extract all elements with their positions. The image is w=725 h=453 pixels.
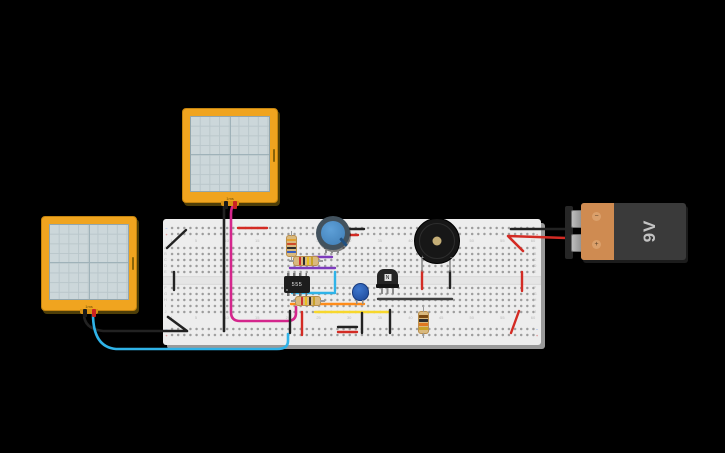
breadboard-label: 45 bbox=[439, 316, 443, 320]
resistor-band bbox=[307, 257, 310, 265]
rail-minus-mark: − bbox=[165, 328, 167, 332]
oscilloscope-top[interactable]: 1ms bbox=[182, 108, 278, 203]
breadboard-label: 10 bbox=[224, 316, 228, 320]
breadboard-label: 60 bbox=[531, 239, 535, 243]
resistor-band bbox=[419, 323, 428, 326]
breadboard-label: B bbox=[164, 252, 167, 256]
breadboard-label: J bbox=[165, 310, 167, 314]
breadboard-label: A bbox=[534, 246, 537, 250]
breadboard-label: D bbox=[164, 264, 167, 268]
potentiometer-pins bbox=[325, 250, 342, 253]
resistor-band bbox=[287, 251, 296, 254]
breadboard-label: 1 bbox=[170, 239, 172, 243]
rail-plus-mark: + bbox=[536, 233, 538, 237]
breadboard-label: F bbox=[164, 286, 166, 290]
scope-terminal-black[interactable] bbox=[83, 309, 87, 317]
breadboard-label: 15 bbox=[255, 239, 259, 243]
breadboard-rail-top bbox=[169, 225, 535, 237]
breadboard-label: 50 bbox=[469, 239, 473, 243]
breadboard-label: I bbox=[534, 304, 535, 308]
scope-terminal-red[interactable] bbox=[92, 309, 96, 317]
breadboard-center-channel bbox=[163, 276, 541, 285]
breadboard-label: G bbox=[164, 292, 167, 296]
potentiometer-knob[interactable] bbox=[321, 221, 345, 245]
breadboard-label: 50 bbox=[469, 316, 473, 320]
breadboard-label: F bbox=[534, 286, 536, 290]
breadboard-label: 35 bbox=[378, 316, 382, 320]
breadboard-label: 15 bbox=[255, 316, 259, 320]
potentiometer-pointer bbox=[339, 237, 348, 247]
buzzer-center-dot bbox=[433, 237, 442, 246]
breadboard-label: A bbox=[164, 246, 167, 250]
resistor-band bbox=[309, 297, 312, 305]
breadboard-rows-a-e bbox=[169, 245, 535, 275]
resistor-band bbox=[303, 257, 306, 265]
oscilloscope-side-mark bbox=[132, 257, 134, 270]
battery-minus-symbol: − bbox=[592, 212, 601, 221]
ic-label: 555 bbox=[292, 282, 303, 288]
oscilloscope-bottom[interactable]: 1ms bbox=[41, 216, 137, 311]
breadboard-label: C bbox=[534, 258, 537, 262]
breadboard-label: C bbox=[164, 258, 167, 262]
breadboard-label: 60 bbox=[531, 316, 535, 320]
breadboard-label: 5 bbox=[195, 316, 197, 320]
resistor-band bbox=[287, 247, 296, 250]
resistor-band bbox=[299, 257, 302, 265]
breadboard[interactable]: − + − + − + − + 115510101515202025253030… bbox=[163, 219, 541, 345]
breadboard-label: D bbox=[534, 264, 537, 268]
breadboard-label: G bbox=[533, 292, 536, 296]
rail-plus-mark: + bbox=[165, 233, 167, 237]
transistor-npn[interactable]: N bbox=[377, 269, 398, 288]
battery-plus-symbol: + bbox=[592, 240, 601, 249]
potentiometer[interactable] bbox=[316, 216, 350, 250]
resistor-band bbox=[313, 297, 316, 305]
breadboard-label: 40 bbox=[408, 316, 412, 320]
rail-plus-mark: + bbox=[536, 334, 538, 338]
battery-9v[interactable]: − + 9V bbox=[581, 203, 686, 260]
transistor-label: N bbox=[384, 274, 391, 281]
breadboard-label: 1 bbox=[170, 316, 172, 320]
rail-plus-mark: + bbox=[165, 334, 167, 338]
buzzer-plus-symbol: + bbox=[421, 256, 424, 261]
resistor-3[interactable] bbox=[295, 296, 321, 306]
resistor-band bbox=[287, 243, 296, 246]
rail-minus-mark: − bbox=[536, 227, 538, 231]
breadboard-label: B bbox=[534, 252, 537, 256]
resistor-band bbox=[419, 315, 428, 318]
oscilloscope-screen bbox=[190, 116, 270, 192]
resistor-band bbox=[287, 239, 296, 242]
breadboard-label: 10 bbox=[224, 239, 228, 243]
battery-voltage-label: 9V bbox=[640, 220, 660, 243]
breadboard-label: I bbox=[165, 304, 166, 308]
breadboard-label: E bbox=[534, 270, 537, 274]
breadboard-label: 25 bbox=[316, 316, 320, 320]
scope-terminal-black[interactable] bbox=[224, 201, 228, 209]
breadboard-label: H bbox=[534, 298, 537, 302]
breadboard-label: 30 bbox=[347, 316, 351, 320]
breadboard-label: J bbox=[534, 310, 536, 314]
resistor-band bbox=[311, 257, 314, 265]
breadboard-rail-bottom bbox=[169, 326, 535, 338]
breadboard-label: 55 bbox=[500, 316, 504, 320]
breadboard-label: 5 bbox=[195, 239, 197, 243]
scope-terminal-red[interactable] bbox=[233, 201, 237, 209]
timer-ic-555[interactable]: 555 bbox=[284, 276, 310, 293]
capacitor[interactable] bbox=[352, 283, 369, 301]
breadboard-label: H bbox=[164, 298, 167, 302]
oscilloscope-screen bbox=[49, 224, 129, 300]
breadboard-label: 40 bbox=[408, 239, 412, 243]
buzzer-minus-symbol: − bbox=[450, 256, 453, 261]
breadboard-label: E bbox=[164, 270, 167, 274]
resistor-1[interactable] bbox=[286, 235, 297, 257]
breadboard-label: 35 bbox=[378, 239, 382, 243]
resistor-band bbox=[419, 319, 428, 322]
resistor-band bbox=[419, 327, 428, 330]
resistor-4[interactable] bbox=[418, 311, 429, 334]
circuit-canvas: − + − + − + − + 115510101515202025253030… bbox=[0, 0, 725, 453]
rail-minus-mark: − bbox=[536, 328, 538, 332]
oscilloscope-side-mark bbox=[273, 149, 275, 162]
resistor-band bbox=[301, 297, 304, 305]
breadboard-label: 20 bbox=[286, 316, 290, 320]
ic-pin1-dot bbox=[286, 289, 288, 291]
piezo-buzzer[interactable]: + − bbox=[414, 218, 460, 264]
resistor-band bbox=[305, 297, 308, 305]
rail-minus-mark: − bbox=[165, 227, 167, 231]
breadboard-label: 55 bbox=[500, 239, 504, 243]
resistor-2[interactable] bbox=[293, 256, 319, 266]
